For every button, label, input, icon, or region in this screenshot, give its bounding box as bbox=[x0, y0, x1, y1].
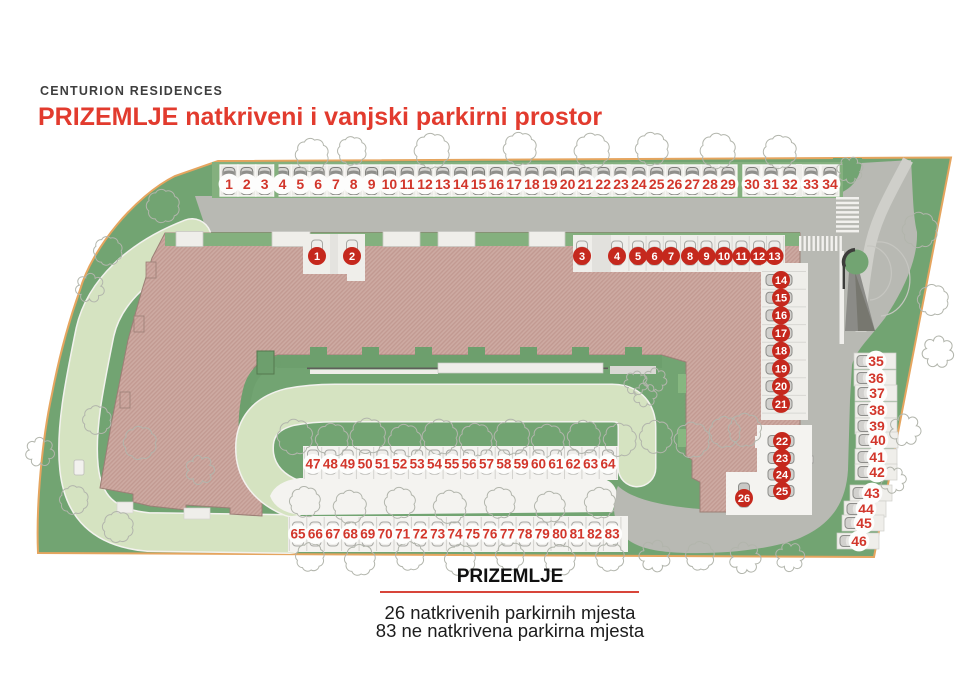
svg-text:2: 2 bbox=[349, 251, 355, 263]
svg-text:12: 12 bbox=[753, 251, 765, 263]
svg-text:28: 28 bbox=[702, 176, 718, 192]
svg-text:69: 69 bbox=[360, 527, 375, 542]
svg-text:21: 21 bbox=[578, 176, 594, 192]
svg-text:8: 8 bbox=[687, 251, 693, 263]
svg-text:5: 5 bbox=[635, 251, 641, 263]
svg-text:19: 19 bbox=[542, 176, 558, 192]
svg-text:76: 76 bbox=[482, 527, 498, 542]
svg-text:66: 66 bbox=[308, 527, 324, 542]
svg-text:46: 46 bbox=[851, 533, 867, 549]
svg-text:24: 24 bbox=[631, 176, 647, 192]
svg-text:20: 20 bbox=[775, 381, 787, 393]
svg-text:4: 4 bbox=[614, 251, 621, 263]
svg-text:57: 57 bbox=[479, 457, 494, 472]
svg-text:4: 4 bbox=[279, 176, 287, 192]
svg-text:11: 11 bbox=[736, 251, 748, 263]
svg-text:51: 51 bbox=[375, 457, 391, 472]
svg-text:26: 26 bbox=[667, 176, 683, 192]
svg-text:40: 40 bbox=[870, 432, 886, 448]
svg-text:24: 24 bbox=[776, 469, 789, 481]
svg-text:18: 18 bbox=[775, 346, 787, 358]
svg-text:7: 7 bbox=[332, 176, 340, 192]
svg-text:14: 14 bbox=[775, 275, 788, 287]
svg-text:6: 6 bbox=[314, 176, 322, 192]
svg-text:49: 49 bbox=[340, 457, 355, 472]
svg-text:75: 75 bbox=[465, 527, 481, 542]
svg-text:8: 8 bbox=[350, 176, 358, 192]
svg-text:6: 6 bbox=[651, 251, 657, 263]
svg-text:63: 63 bbox=[583, 457, 599, 472]
svg-text:16: 16 bbox=[489, 176, 505, 192]
svg-text:43: 43 bbox=[864, 485, 880, 501]
svg-text:55: 55 bbox=[444, 457, 460, 472]
svg-text:10: 10 bbox=[718, 251, 730, 263]
svg-text:9: 9 bbox=[703, 251, 709, 263]
svg-text:11: 11 bbox=[400, 176, 415, 192]
svg-text:23: 23 bbox=[613, 176, 629, 192]
svg-text:83: 83 bbox=[605, 527, 621, 542]
svg-text:48: 48 bbox=[323, 457, 339, 472]
svg-text:60: 60 bbox=[531, 457, 546, 472]
svg-text:77: 77 bbox=[500, 527, 515, 542]
svg-text:73: 73 bbox=[430, 527, 446, 542]
svg-text:18: 18 bbox=[524, 176, 540, 192]
svg-text:13: 13 bbox=[435, 176, 451, 192]
svg-text:7: 7 bbox=[668, 251, 674, 263]
svg-text:2: 2 bbox=[243, 176, 251, 192]
svg-text:22: 22 bbox=[595, 176, 611, 192]
svg-text:13: 13 bbox=[768, 251, 780, 263]
svg-text:33: 33 bbox=[803, 176, 819, 192]
svg-text:34: 34 bbox=[822, 176, 838, 192]
svg-text:52: 52 bbox=[392, 457, 407, 472]
svg-text:32: 32 bbox=[782, 176, 798, 192]
svg-text:19: 19 bbox=[775, 363, 787, 375]
svg-text:14: 14 bbox=[453, 176, 469, 192]
svg-text:71: 71 bbox=[395, 527, 411, 542]
svg-text:3: 3 bbox=[579, 251, 585, 263]
svg-text:53: 53 bbox=[410, 457, 426, 472]
svg-text:72: 72 bbox=[413, 527, 428, 542]
svg-text:47: 47 bbox=[305, 457, 320, 472]
svg-text:58: 58 bbox=[496, 457, 512, 472]
svg-text:50: 50 bbox=[358, 457, 373, 472]
svg-text:67: 67 bbox=[325, 527, 340, 542]
svg-text:15: 15 bbox=[775, 293, 787, 305]
svg-text:17: 17 bbox=[775, 328, 787, 340]
svg-text:27: 27 bbox=[685, 176, 701, 192]
svg-text:29: 29 bbox=[720, 176, 736, 192]
svg-text:79: 79 bbox=[535, 527, 550, 542]
svg-text:78: 78 bbox=[517, 527, 533, 542]
svg-text:25: 25 bbox=[649, 176, 665, 192]
svg-text:20: 20 bbox=[560, 176, 576, 192]
svg-text:9: 9 bbox=[368, 176, 376, 192]
svg-text:62: 62 bbox=[566, 457, 581, 472]
svg-text:70: 70 bbox=[378, 527, 393, 542]
svg-text:81: 81 bbox=[570, 527, 586, 542]
svg-text:17: 17 bbox=[506, 176, 522, 192]
svg-text:56: 56 bbox=[462, 457, 478, 472]
svg-text:68: 68 bbox=[343, 527, 359, 542]
svg-text:10: 10 bbox=[382, 176, 398, 192]
svg-text:38: 38 bbox=[869, 402, 885, 418]
svg-text:35: 35 bbox=[868, 353, 884, 369]
svg-text:64: 64 bbox=[600, 457, 616, 472]
svg-text:3: 3 bbox=[261, 176, 269, 192]
svg-text:45: 45 bbox=[856, 515, 872, 531]
svg-text:15: 15 bbox=[471, 176, 487, 192]
svg-text:16: 16 bbox=[775, 310, 787, 322]
svg-text:54: 54 bbox=[427, 457, 443, 472]
svg-text:26: 26 bbox=[738, 493, 750, 505]
svg-text:80: 80 bbox=[552, 527, 567, 542]
svg-text:82: 82 bbox=[587, 527, 602, 542]
svg-text:12: 12 bbox=[417, 176, 433, 192]
svg-text:23: 23 bbox=[776, 453, 788, 465]
svg-text:37: 37 bbox=[869, 385, 885, 401]
svg-text:42: 42 bbox=[869, 464, 885, 480]
svg-text:1: 1 bbox=[314, 251, 320, 263]
svg-text:31: 31 bbox=[763, 176, 779, 192]
svg-text:61: 61 bbox=[548, 457, 564, 472]
svg-text:65: 65 bbox=[290, 527, 306, 542]
svg-text:1: 1 bbox=[225, 176, 233, 192]
svg-text:25: 25 bbox=[776, 486, 788, 498]
svg-text:74: 74 bbox=[447, 527, 463, 542]
svg-text:30: 30 bbox=[744, 176, 760, 192]
svg-text:21: 21 bbox=[775, 399, 787, 411]
svg-text:5: 5 bbox=[296, 176, 304, 192]
svg-text:59: 59 bbox=[514, 457, 529, 472]
svg-text:22: 22 bbox=[776, 436, 788, 448]
